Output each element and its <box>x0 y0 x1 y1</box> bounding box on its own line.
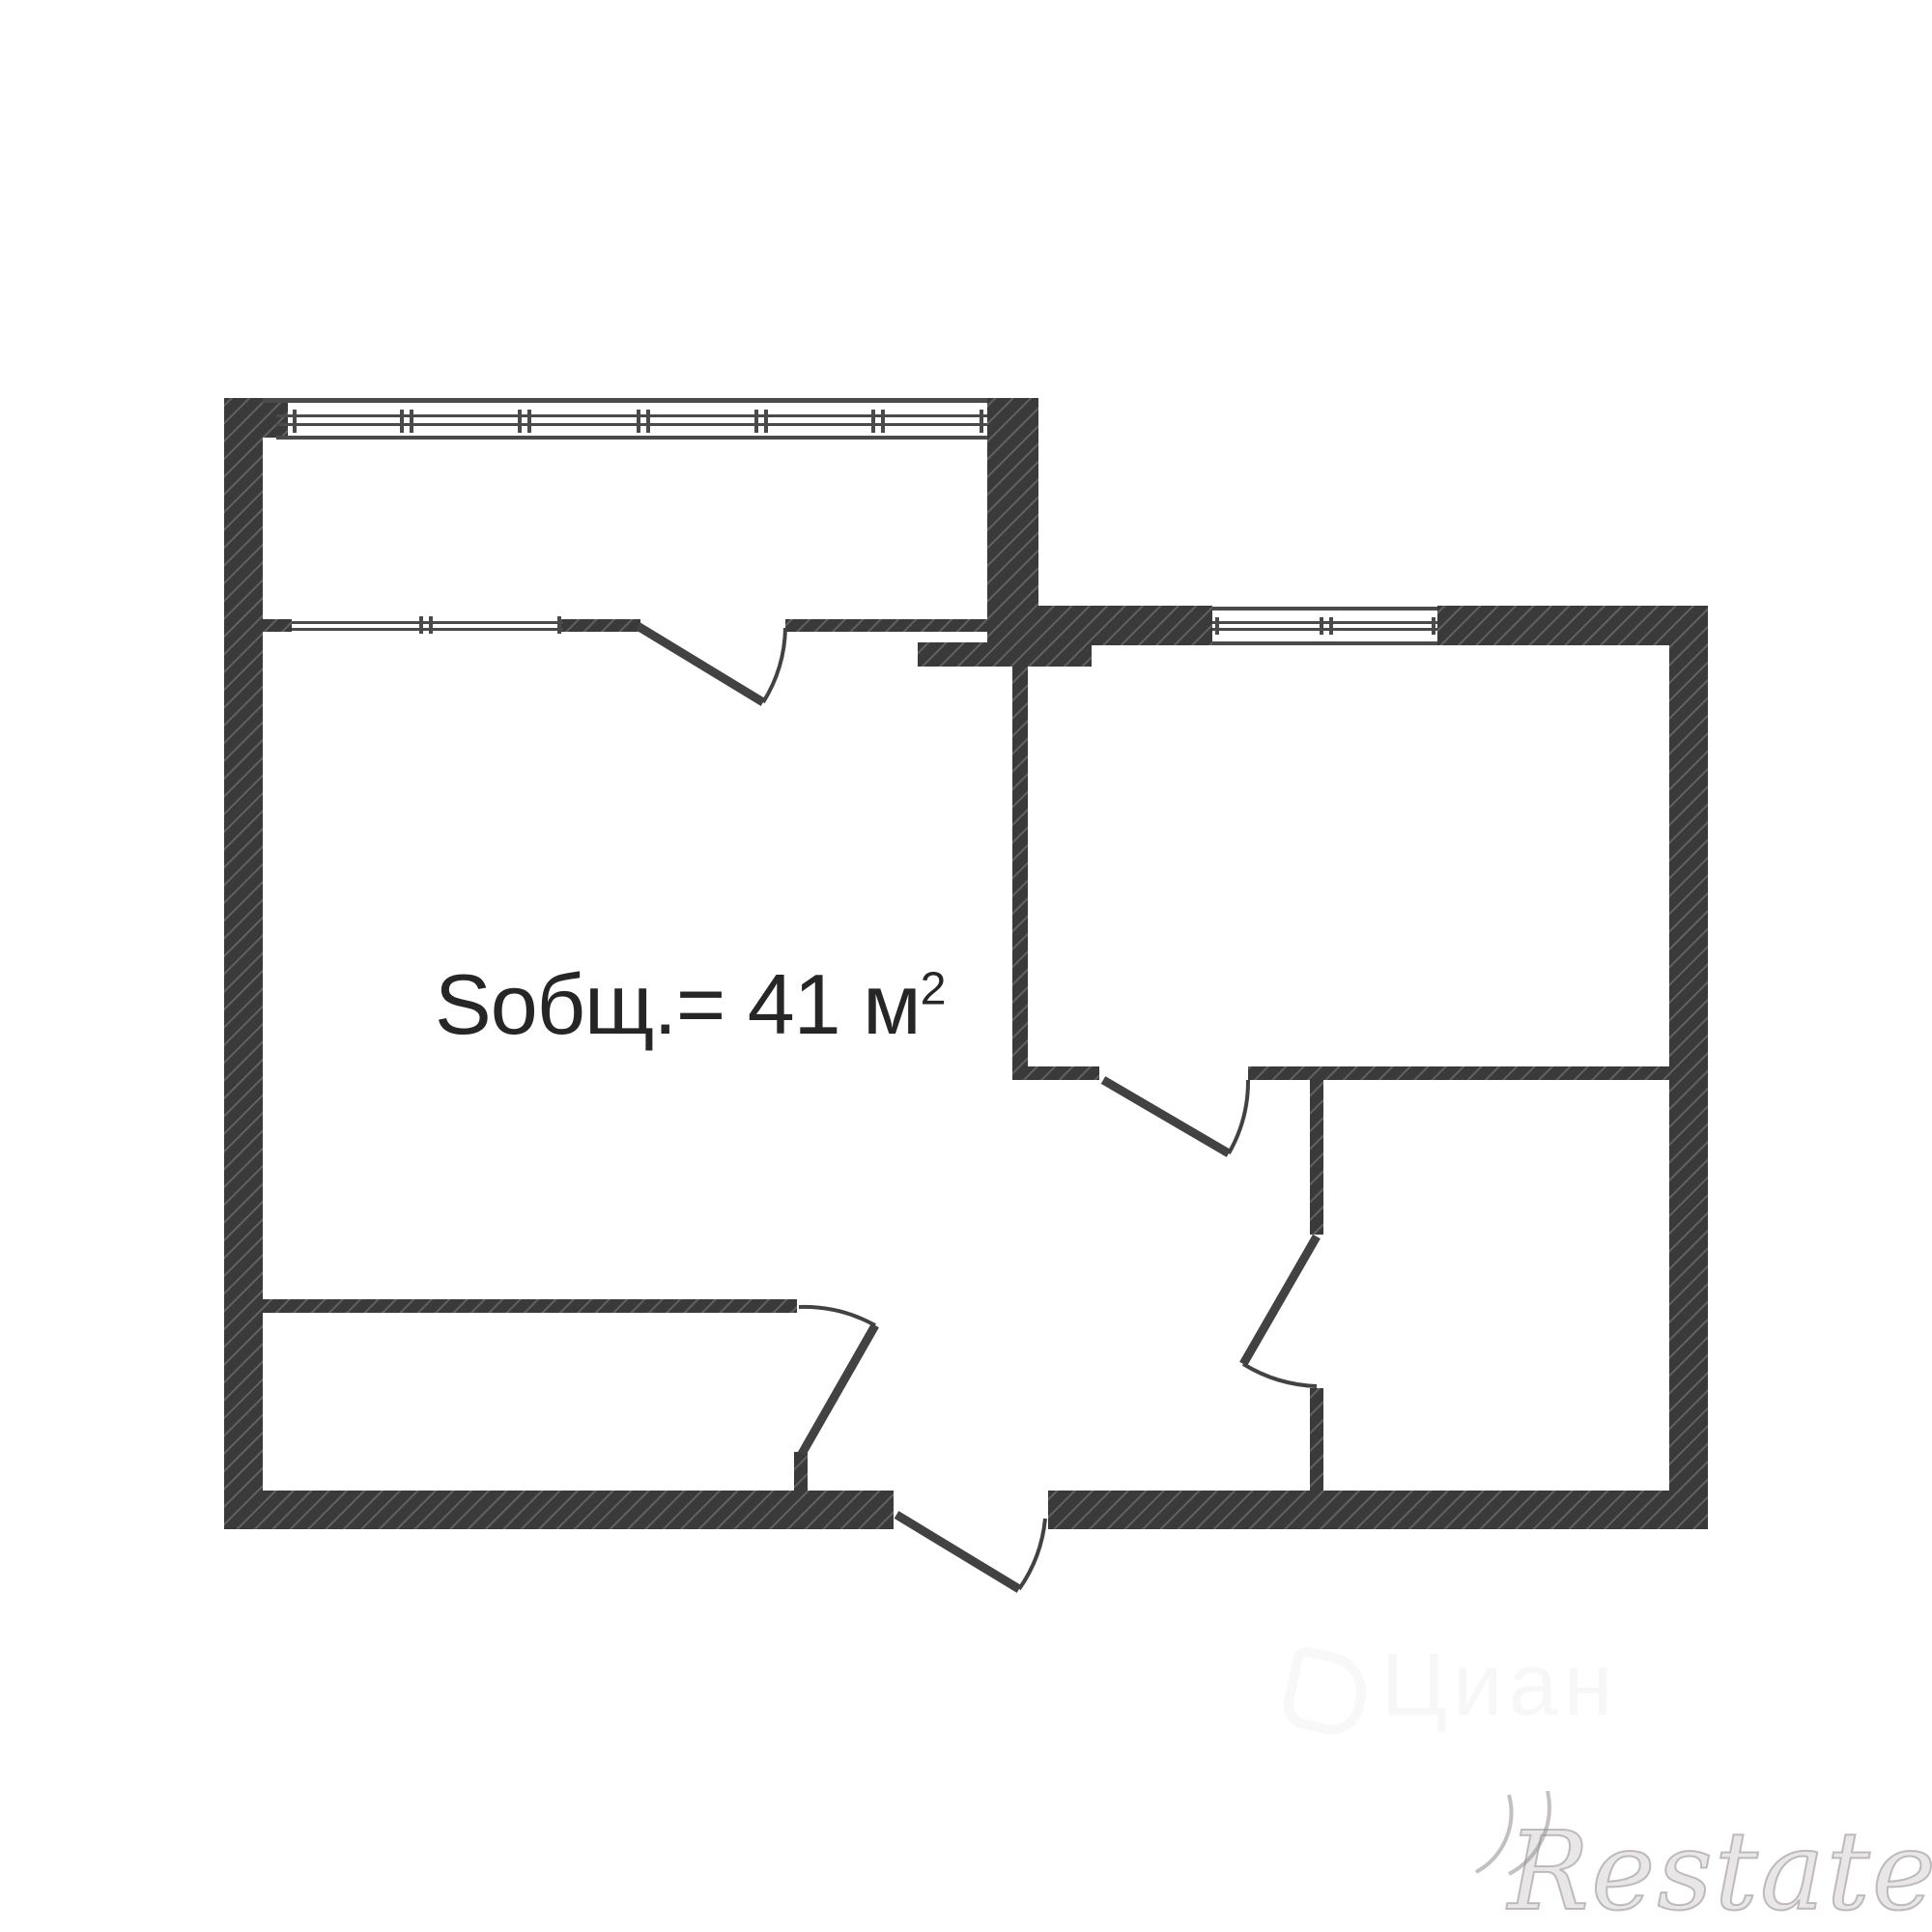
partition-glazing-2 <box>292 628 563 631</box>
window-mullion-tick-3 <box>518 410 522 433</box>
door-kitchen-leaf <box>1103 1080 1229 1153</box>
wall-room-door-stub <box>794 1452 808 1491</box>
wall-hall-top <box>1248 1066 1708 1080</box>
faint-watermark-text: Циан <box>1381 1640 1618 1729</box>
window-mullion-tick-15 <box>1432 617 1435 635</box>
wall-kitchen-left <box>1012 644 1028 1066</box>
window-mullion-tick-18 <box>557 616 561 634</box>
total-area-sup: 2 <box>921 963 946 1015</box>
door-entrance-leaf <box>896 1515 1019 1589</box>
floorplan-drawing <box>0 0 1932 1932</box>
window-mullion-tick-5 <box>637 410 640 433</box>
window-mullion-tick-10 <box>881 410 885 433</box>
wall-top-right-b <box>1437 606 1708 645</box>
door-balcony-leaf <box>638 626 763 702</box>
balcony-window-pane-1 <box>276 414 987 417</box>
door-kitchen-swing-arc <box>1229 1080 1248 1153</box>
partition-glazing-1 <box>292 621 563 624</box>
door-bathroom-swing-arc <box>1243 1364 1317 1386</box>
total-area-label: Sобщ.= 41 м2 <box>435 962 945 1047</box>
wall-room-bottom <box>263 1299 797 1313</box>
window-mullion-tick-7 <box>754 410 758 433</box>
window-mullion-tick-13 <box>1320 617 1323 635</box>
window-mullion-tick-2 <box>410 410 413 433</box>
wall-kitchen-corner-pier <box>918 642 1092 667</box>
wall-balcony-partition-stub <box>560 619 640 632</box>
wall-top-left-corner-block <box>224 398 288 438</box>
window-mullion-tick-1 <box>400 410 404 433</box>
door-bathroom-leaf <box>1243 1236 1317 1364</box>
wall-bottom-right <box>1048 1491 1708 1529</box>
wall-left-exterior <box>224 398 263 1529</box>
balcony-window-sill <box>276 436 987 440</box>
kitchen-window-pane-1 <box>1212 621 1437 624</box>
window-mullion-tick-17 <box>429 616 433 634</box>
kitchen-window-pane-2 <box>1212 628 1437 631</box>
door-room-swing-arc <box>799 1307 875 1325</box>
window-mullion-tick-12 <box>1215 617 1219 635</box>
wall-kitchen-door-stub <box>1012 1066 1099 1080</box>
wall-top-right-a <box>987 606 1212 645</box>
total-area-text: Sобщ.= 41 м <box>435 956 921 1052</box>
wall-bottom-left <box>224 1491 894 1529</box>
window-mullion-tick-16 <box>419 616 423 634</box>
balcony-window-pane-2 <box>276 423 987 426</box>
window-mullion-tick-11 <box>980 410 983 433</box>
window-mullion-tick-4 <box>527 410 531 433</box>
window-mullion-tick-8 <box>764 410 768 433</box>
floorplan-canvas: Sобщ.= 41 м2 Циан Restate <box>0 0 1932 1932</box>
door-room-leaf <box>802 1325 875 1454</box>
wall-bath-upper <box>1310 1080 1323 1235</box>
kitchen-window-outer <box>1212 607 1437 611</box>
window-mullion-tick-14 <box>1329 617 1333 635</box>
door-balcony-swing-arc <box>763 628 785 702</box>
wall-balcony-partition-left-block <box>263 619 292 632</box>
window-mullion-tick-0 <box>293 410 297 433</box>
wall-bath-lower <box>1310 1388 1323 1491</box>
balcony-window-outer <box>263 398 987 403</box>
window-mullion-tick-6 <box>646 410 650 433</box>
wall-balcony-right <box>987 398 1038 609</box>
wall-balcony-partition-right <box>785 619 987 632</box>
kitchen-window-sill <box>1212 641 1437 645</box>
window-mullion-tick-9 <box>871 410 875 433</box>
restate-watermark-text: Restate <box>1508 1818 1932 1926</box>
door-entrance-swing-arc <box>1019 1519 1045 1589</box>
